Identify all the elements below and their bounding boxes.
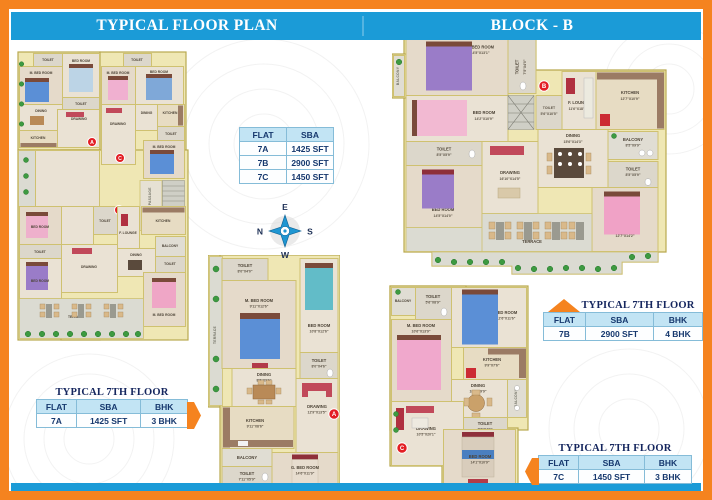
svg-text:16'10"X14'5": 16'10"X14'5"	[500, 177, 521, 181]
bed-icon	[422, 170, 454, 209]
svg-text:10'6"X13'9": 10'6"X13'9"	[412, 330, 431, 334]
footer-bar	[11, 483, 701, 493]
svg-text:BALCONY: BALCONY	[395, 299, 412, 303]
col-flat: FLAT	[539, 456, 579, 470]
col-flat: FLAT	[240, 128, 287, 142]
svg-text:BED ROOM: BED ROOM	[72, 59, 90, 63]
foyer	[62, 207, 94, 245]
svg-text:DINING: DINING	[257, 372, 271, 377]
room-toilet: TOILET 7'5"X4'0"	[508, 40, 536, 94]
svg-text:TOILET: TOILET	[75, 102, 87, 106]
flat-marker-c: C	[116, 154, 125, 163]
table-row: 7B 2900 SFT 4 BHK	[544, 327, 703, 341]
composite-floor-plan: TOILET M. BED ROOM BED ROOM TOILET DININ…	[16, 50, 206, 345]
sba-cell: 1450 SFT	[287, 170, 334, 184]
compass-south: S	[307, 227, 313, 237]
svg-text:BED ROOM: BED ROOM	[495, 310, 518, 315]
svg-text:M. BED ROOM: M. BED ROOM	[153, 313, 176, 317]
col-bhk: BHK	[644, 456, 691, 470]
room-bedroom: BED ROOM12'6"X11'6"	[452, 288, 527, 348]
svg-text:M. BED ROOM: M. BED ROOM	[153, 145, 176, 149]
svg-text:KITCHEN: KITCHEN	[31, 136, 46, 140]
staircase	[508, 96, 534, 130]
floor-table-title: TYPICAL 7TH FLOOR	[538, 443, 692, 454]
tv-unit-icon	[396, 408, 404, 430]
room-toilet: TOILET8'0"X4'6"	[300, 353, 338, 379]
toilet-fixture-icon	[469, 150, 475, 158]
svg-text:7'11"X5'9": 7'11"X5'9"	[239, 478, 256, 482]
flat-7a-plan: TERRACE TOILET8'0"X4'0" M. BED ROOM9'11"…	[208, 255, 340, 491]
table-header-row: FLAT SBA	[240, 128, 334, 142]
header-bar: TYPICAL FLOOR PLAN BLOCK - B	[11, 12, 701, 40]
toilet-fixture-icon	[520, 82, 526, 90]
svg-text:BALCONY: BALCONY	[623, 137, 644, 142]
flat-cell: 7A	[240, 142, 287, 156]
bed-icon	[305, 263, 333, 310]
sba-table: FLAT SBA 7A 1425 SFT 7B 2900 SFT 7C 1450…	[239, 127, 334, 184]
floor-table-7a: TYPICAL 7TH FLOOR FLAT SBA BHK 7A 1425 S…	[36, 387, 188, 428]
svg-text:8'5"X5'9": 8'5"X5'9"	[625, 173, 640, 177]
svg-text:KITCHEN: KITCHEN	[163, 111, 178, 115]
staircase	[163, 181, 185, 207]
room-toilet: TOILET8'0"X4'0"	[222, 259, 268, 281]
svg-text:BED ROOM: BED ROOM	[31, 279, 49, 283]
svg-text:KITCHEN: KITCHEN	[621, 90, 639, 95]
room-dining: DINING15'6"X14'3"	[538, 130, 608, 188]
room-toilet: TOILET	[158, 127, 185, 141]
sofa-icon	[584, 78, 593, 118]
room-toilet: TOILET	[156, 257, 186, 273]
svg-text:M. BED ROOM: M. BED ROOM	[407, 323, 436, 328]
terrace-strip: TERRACE	[210, 257, 223, 406]
svg-text:M. BED ROOM: M. BED ROOM	[30, 71, 53, 75]
svg-text:BALCONY: BALCONY	[396, 66, 400, 85]
table-row: 7C 1450 SFT 3 BHK	[539, 470, 692, 484]
svg-text:C: C	[400, 446, 405, 452]
room-dining: DINING	[136, 105, 158, 131]
compass-north: N	[257, 227, 263, 237]
block-title: BLOCK - B	[363, 12, 701, 40]
room-balcony: BALCONY	[222, 449, 272, 467]
svg-text:5'6"X8'9": 5'6"X8'9"	[425, 301, 440, 305]
svg-text:8'5"X5'9": 8'5"X5'9"	[436, 153, 451, 157]
svg-text:DRAWING: DRAWING	[500, 170, 520, 175]
svg-text:KITCHEN: KITCHEN	[483, 357, 501, 362]
toilet-fixture-icon	[262, 473, 268, 481]
svg-text:M. BED ROOM: M. BED ROOM	[245, 298, 274, 303]
svg-text:14'5"X14'0": 14'5"X14'0"	[434, 214, 453, 218]
svg-text:DINING: DINING	[35, 109, 47, 113]
svg-text:TOILET: TOILET	[626, 167, 641, 172]
room-drawing: DRAWING16'10"X14'5"	[482, 142, 538, 214]
svg-text:DRAWING: DRAWING	[71, 117, 87, 121]
svg-text:DINING: DINING	[566, 133, 580, 138]
svg-text:DRAWING: DRAWING	[307, 404, 327, 409]
room-master-bedroom: M. BED ROOM	[144, 141, 185, 179]
col-sba: SBA	[287, 128, 334, 142]
room-master-bedroom: M. BED ROOM	[20, 67, 63, 105]
room-dining: DINING	[20, 105, 63, 131]
svg-text:BED ROOM: BED ROOM	[308, 323, 331, 328]
svg-text:8'0"X4'6": 8'0"X4'6"	[311, 365, 326, 369]
bed-icon	[604, 192, 640, 235]
room-toilet: TOILET	[124, 54, 152, 67]
svg-text:DRAWING: DRAWING	[110, 122, 126, 126]
flat-marker-a: A	[329, 409, 339, 419]
room-balcony: BALCONY	[156, 237, 186, 257]
brochure-page: TYPICAL FLOOR PLAN BLOCK - B FLAT SBA 7A…	[0, 0, 712, 500]
room-toilet: TOILET	[20, 245, 62, 259]
sba-cell: 2900 SFT	[585, 327, 653, 341]
svg-text:9'9"X7'6": 9'9"X7'6"	[484, 364, 499, 368]
svg-text:TOILET: TOILET	[42, 58, 54, 62]
room-dining: DINING8'5"X9'6"	[232, 369, 296, 407]
terrace: TERRACE	[20, 299, 144, 339]
room-master-bedroom: M. BED ROOM14'5"X13'1"	[406, 40, 508, 96]
col-bhk: BHK	[141, 400, 188, 414]
toilet-fixture-icon	[645, 179, 651, 186]
bed-icon	[397, 335, 441, 390]
room-bedroom: BED ROOM14'1"X10'9"	[444, 430, 516, 485]
room-bedroom: BED ROOM	[20, 259, 62, 299]
room-kitchen: KITCHEN	[142, 207, 186, 235]
table-row: 7B 2900 SFT	[240, 156, 334, 170]
svg-text:G. BED ROOM: G. BED ROOM	[291, 465, 320, 470]
col-bhk: BHK	[653, 313, 702, 327]
svg-text:10'8"X12'6": 10'8"X12'6"	[310, 330, 329, 334]
svg-text:9'11"X8'6": 9'11"X8'6"	[247, 425, 264, 429]
room-kitchen: KITCHEN9'9"X7'6"	[464, 348, 527, 380]
bhk-cell: 3 BHK	[644, 470, 691, 484]
svg-text:14'6"X11'9": 14'6"X11'9"	[296, 472, 315, 476]
room-master-bedroom: M. BED ROOM10'6"X13'9"	[392, 320, 452, 402]
room-toilet: TOILET	[63, 98, 100, 110]
svg-text:7'5"X4'0": 7'5"X4'0"	[523, 59, 527, 74]
svg-text:KITCHEN: KITCHEN	[156, 219, 171, 223]
coffee-table-icon	[412, 418, 428, 428]
svg-text:TOILET: TOILET	[312, 358, 327, 363]
toilet-fixture-icon	[327, 369, 333, 377]
svg-text:10'5"X20'1": 10'5"X20'1"	[417, 433, 436, 437]
room-kitchen: KITCHEN	[158, 105, 185, 127]
svg-text:BED ROOM: BED ROOM	[31, 225, 49, 229]
svg-text:BALCONY: BALCONY	[237, 455, 258, 460]
svg-text:15'6"X14'3": 15'6"X14'3"	[564, 140, 583, 144]
room-toilet: TOILET	[34, 54, 64, 67]
svg-text:12'6"X11'6": 12'6"X11'6"	[497, 317, 516, 321]
svg-text:TOILET: TOILET	[426, 294, 441, 299]
floor-table-title: TYPICAL 7TH FLOOR	[36, 387, 188, 398]
svg-text:12'7"X14'2": 12'7"X14'2"	[616, 234, 635, 238]
sofa-icon	[406, 406, 434, 413]
table-row: 7A 1425 SFT	[240, 142, 334, 156]
svg-text:TOILET: TOILET	[238, 263, 253, 268]
svg-text:BED ROOM: BED ROOM	[150, 70, 168, 74]
svg-text:TOILET: TOILET	[240, 471, 255, 476]
svg-text:DINING: DINING	[141, 111, 153, 115]
svg-text:B: B	[542, 84, 547, 90]
room-toilet: TOILET	[94, 207, 118, 235]
tv-unit-icon	[566, 78, 575, 94]
svg-text:BALCONY: BALCONY	[162, 244, 179, 248]
svg-text:DINING: DINING	[471, 383, 485, 388]
svg-text:TOILET: TOILET	[437, 147, 452, 152]
svg-text:M. BED ROOM: M. BED ROOM	[107, 71, 130, 75]
bhk-cell: 3 BHK	[141, 414, 188, 428]
svg-text:TERRACE: TERRACE	[213, 325, 217, 344]
room-balcony: BALCONY8'5"X9'9"	[608, 132, 658, 160]
svg-text:TOILET: TOILET	[543, 106, 556, 110]
flat-marker-c: C	[397, 443, 407, 453]
flat-cell: 7B	[544, 327, 586, 341]
room-master-bedroom: M. BED ROOM9'11"X12'6"	[222, 281, 296, 369]
rug-icon	[498, 188, 520, 198]
flat-cell: 7C	[240, 170, 287, 184]
svg-text:DINING: DINING	[130, 253, 142, 257]
sba-cell: 1425 SFT	[287, 142, 334, 156]
svg-text:TOILET: TOILET	[478, 421, 493, 426]
bhk-cell: 4 BHK	[653, 327, 702, 341]
room-balcony: BALCONY	[392, 288, 416, 316]
sba-cell: 1450 SFT	[579, 470, 644, 484]
col-sba: SBA	[585, 313, 653, 327]
svg-text:A: A	[332, 412, 337, 418]
room-bedroom: BED ROOM	[20, 207, 62, 245]
sba-cell: 2900 SFT	[287, 156, 334, 170]
svg-text:BED ROOM: BED ROOM	[469, 454, 492, 459]
room-toilet: TOILET8'5"X5'9"	[608, 162, 658, 188]
flat-cell: 7C	[539, 470, 579, 484]
room-kitchen: KITCHEN9'11"X8'6"	[222, 407, 294, 449]
room-drawing: DRAWING	[62, 245, 118, 293]
svg-text:9'11"X12'6": 9'11"X12'6"	[250, 305, 269, 309]
room-toilet: TOILET5'6"X8'9"	[416, 288, 452, 320]
svg-text:8'5"X9'9": 8'5"X9'9"	[625, 144, 640, 148]
foyer	[36, 151, 100, 207]
room-master-bedroom: M. BED ROOM	[102, 67, 136, 105]
col-flat: FLAT	[37, 400, 77, 414]
sofa-icon	[490, 146, 524, 155]
col-flat: FLAT	[544, 313, 586, 327]
bed-icon	[462, 290, 498, 345]
svg-text:5'6"X10'5": 5'6"X10'5"	[540, 112, 557, 116]
svg-text:TOILET: TOILET	[515, 59, 520, 74]
flat-7c-plan: BALCONY TOILET5'6"X8'9" M. BED ROOM10'6"…	[388, 280, 532, 492]
svg-text:TOILET: TOILET	[165, 132, 177, 136]
svg-text:DRAWING: DRAWING	[81, 265, 97, 269]
svg-text:8'0"X4'0": 8'0"X4'0"	[237, 270, 252, 274]
room-balcony: BALCONY	[508, 380, 527, 418]
sba-cell: 1425 SFT	[76, 414, 141, 428]
room-bedroom: BED ROOM14'2"X10'9"	[406, 96, 508, 142]
svg-text:A: A	[90, 140, 94, 146]
flat-marker-b: B	[539, 81, 549, 91]
flat-7b-plan: BALCONY M. BED ROOM14'5"X13'1" TOILET 7'…	[392, 36, 670, 286]
bed-icon	[292, 455, 318, 486]
svg-text:TOILET: TOILET	[164, 262, 176, 266]
svg-text:14'2"X10'9": 14'2"X10'9"	[475, 117, 494, 121]
room-bedroom: BED ROOM	[63, 54, 100, 98]
room-master-bedroom: M. BED ROOM	[144, 273, 186, 327]
room-toilet: TOILET8'5"X5'9"	[406, 142, 482, 166]
floor-table-7c: TYPICAL 7TH FLOOR FLAT SBA BHK 7C 1450 S…	[538, 443, 692, 484]
room-bedroom: BED ROOM10'8"X12'6"	[300, 259, 338, 353]
bed-icon	[412, 100, 467, 136]
compass-west: W	[281, 250, 290, 259]
compass-rose-icon: E S W N	[253, 199, 317, 259]
compass-east: E	[282, 202, 288, 212]
room-balcony: BALCONY	[394, 56, 405, 97]
room-family-lounge: F. LOUNGE	[118, 207, 140, 249]
toilet-fixture-icon	[441, 308, 447, 316]
flat-cell: 7A	[37, 414, 77, 428]
svg-text:TOILET: TOILET	[99, 219, 111, 223]
room-kitchen: KITCHEN12'7"X10'9"	[596, 72, 664, 130]
bed-icon	[426, 42, 472, 91]
svg-text:12'7"X10'9": 12'7"X10'9"	[621, 97, 640, 101]
flat-cell: 7B	[240, 156, 287, 170]
svg-text:BED ROOM: BED ROOM	[473, 110, 496, 115]
svg-text:TOILET: TOILET	[131, 58, 143, 62]
svg-text:TOILET: TOILET	[34, 250, 46, 254]
svg-text:C: C	[118, 156, 122, 162]
svg-text:14'1"X10'9": 14'1"X10'9"	[471, 461, 490, 465]
floor-table-7b: TYPICAL 7TH FLOOR FLAT SBA BHK 7B 2900 S…	[543, 300, 703, 341]
svg-text:KITCHEN: KITCHEN	[246, 418, 264, 423]
room-kitchen: KITCHEN	[20, 131, 58, 148]
room-bedroom: BED ROOM14'5"X14'0"	[406, 166, 482, 228]
room-toilet: TOILET5'6"X10'5"	[536, 96, 562, 130]
page-title: TYPICAL FLOOR PLAN	[11, 12, 363, 40]
room-bedroom: BED ROOM	[136, 67, 184, 105]
table-row: 7A 1425 SFT 3 BHK	[37, 414, 188, 428]
svg-text:F. LOUNGE: F. LOUNGE	[119, 231, 137, 235]
svg-text:12'9"X13'5": 12'9"X13'5"	[308, 411, 327, 415]
col-sba: SBA	[579, 456, 644, 470]
svg-text:BALCONY: BALCONY	[514, 388, 518, 407]
room-family-lounge: F. LOUNGE11'6"X18'10"	[562, 72, 596, 130]
room-master-bedroom: M. BED ROOM12'7"X14'2"	[592, 188, 658, 252]
col-sba: SBA	[76, 400, 141, 414]
table-row: 7C 1450 SFT	[240, 170, 334, 184]
svg-text:14'5"X13'1": 14'5"X13'1"	[471, 51, 490, 55]
flat-marker-a: A	[88, 138, 97, 147]
